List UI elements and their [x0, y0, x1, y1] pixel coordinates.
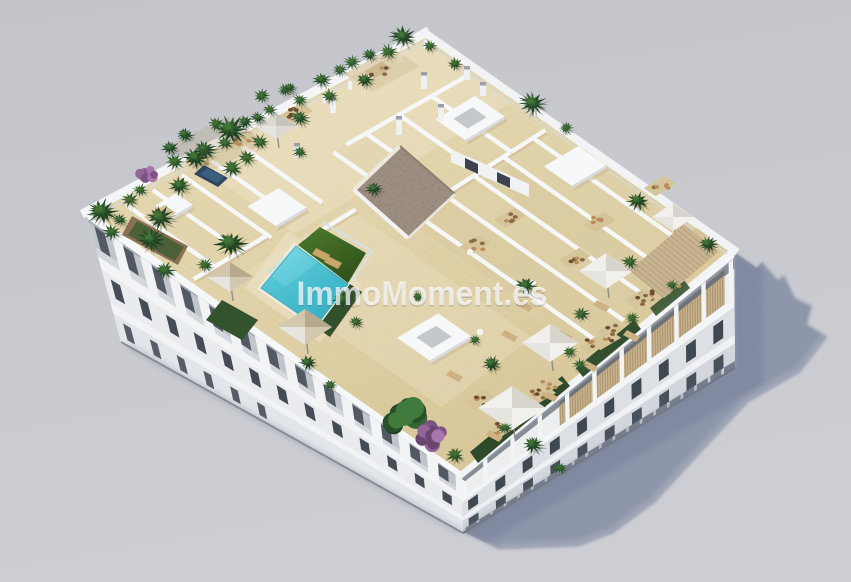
svg-text:ImmoMoment.es: ImmoMoment.es [297, 275, 548, 313]
